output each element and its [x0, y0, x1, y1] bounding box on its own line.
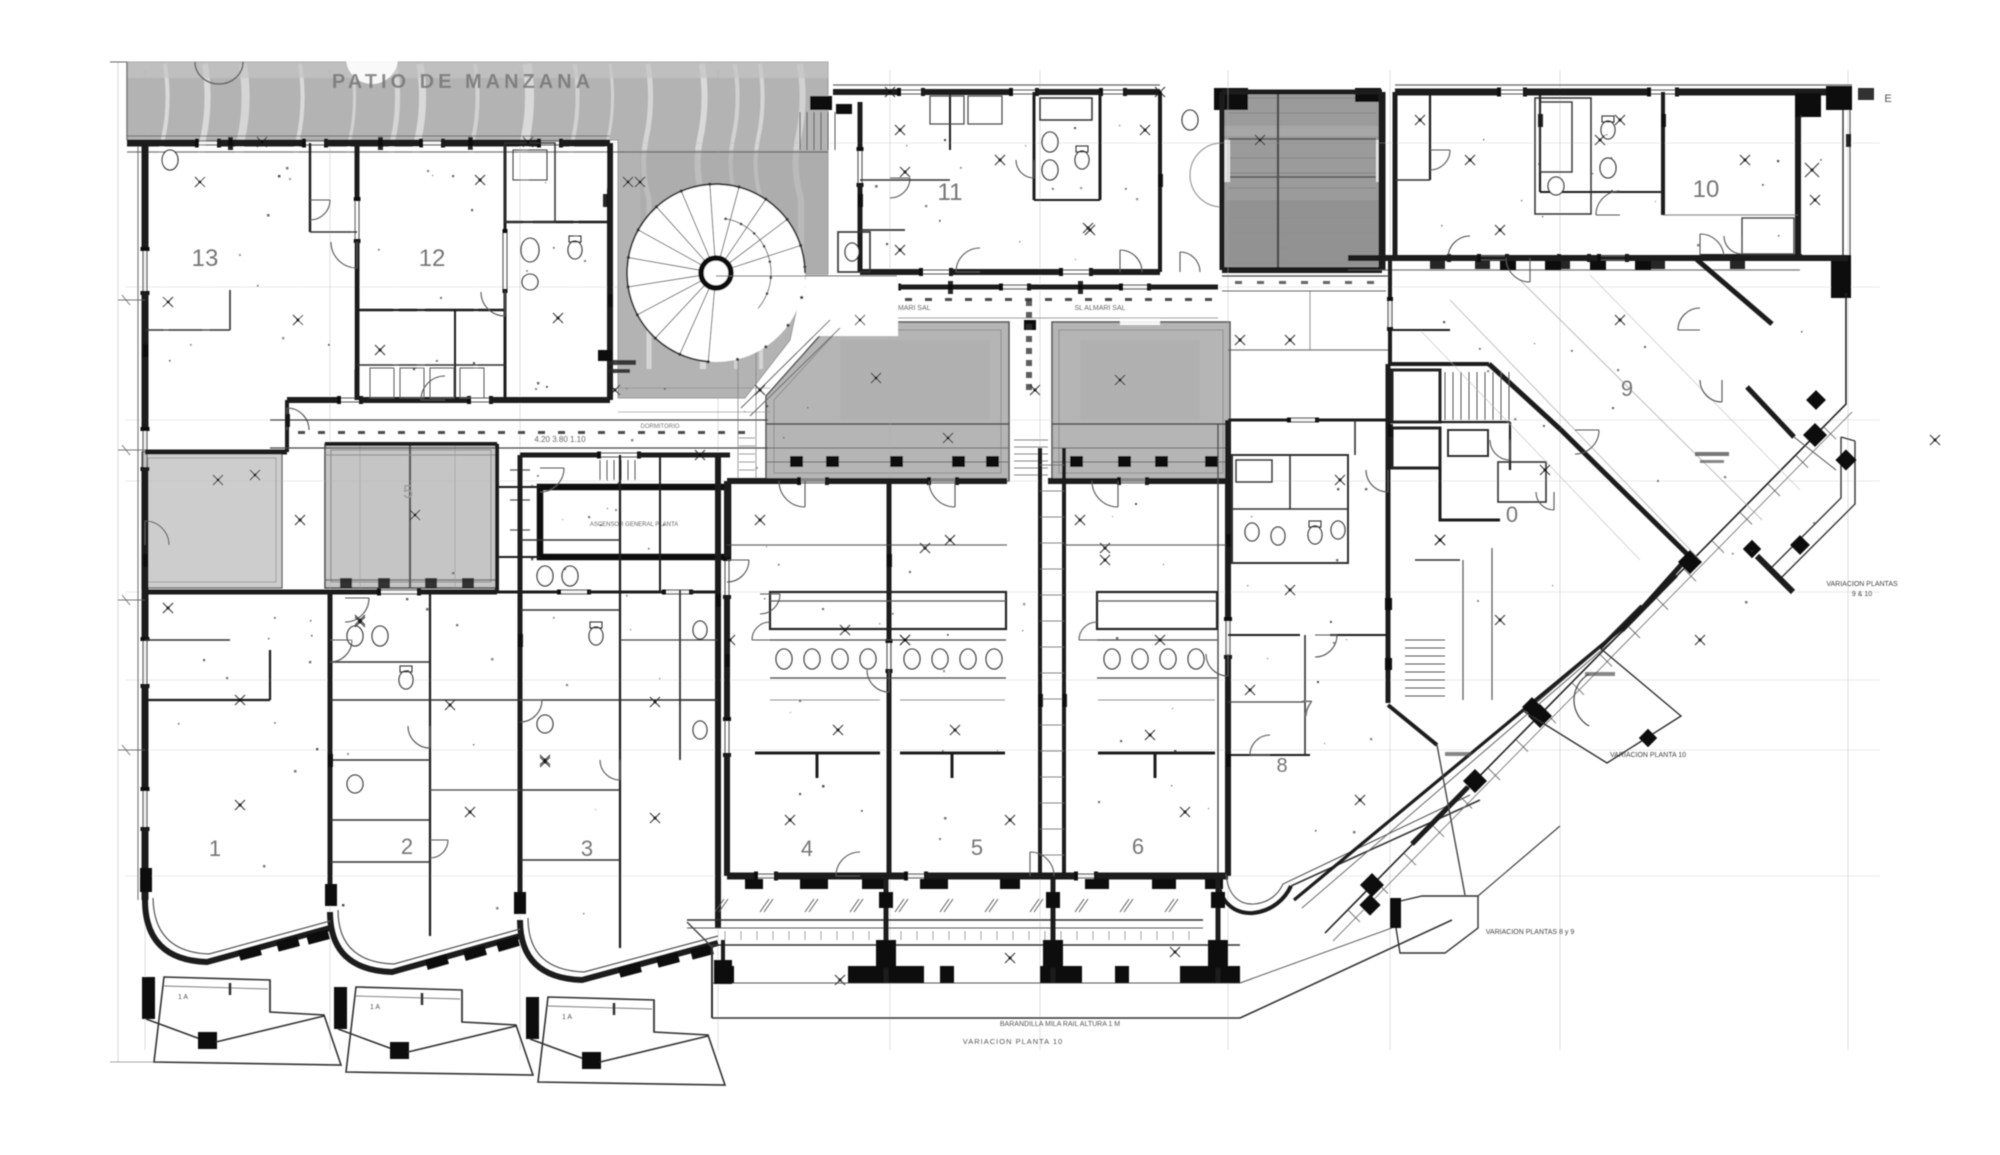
svg-text:ASCENSOR GENERAL PLANTA: ASCENSOR GENERAL PLANTA: [590, 522, 678, 528]
svg-text:E: E: [1884, 93, 1891, 105]
svg-text:1 A: 1 A: [370, 1004, 380, 1011]
svg-text:5: 5: [403, 482, 413, 502]
svg-text:VARIACION PLANTAS: VARIACION PLANTAS: [1826, 581, 1898, 588]
svg-text:8: 8: [1276, 755, 1287, 777]
svg-text:VARIACION PLANTA 10: VARIACION PLANTA 10: [1610, 752, 1686, 759]
svg-text:2: 2: [401, 834, 413, 859]
svg-text:10: 10: [1693, 176, 1720, 203]
svg-text:0: 0: [1506, 502, 1518, 527]
svg-text:VARIACION PLANTAS 8 y 9: VARIACION PLANTAS 8 y 9: [1486, 929, 1575, 936]
svg-text:PATIO DE MANZANA: PATIO DE MANZANA: [332, 71, 594, 93]
svg-text:DORMITORIO: DORMITORIO: [641, 424, 680, 430]
svg-text:SL ALMARI SAL: SL ALMARI SAL: [1074, 305, 1125, 312]
svg-text:5: 5: [971, 835, 983, 860]
svg-text:7: 7: [1301, 696, 1313, 721]
svg-text:9 & 10: 9 & 10: [1852, 591, 1872, 598]
svg-text:3: 3: [581, 836, 593, 861]
svg-text:4: 4: [801, 836, 813, 861]
svg-text:12: 12: [419, 245, 446, 272]
svg-text:11: 11: [938, 179, 963, 206]
svg-text:6: 6: [1132, 834, 1144, 859]
svg-text:1 A: 1 A: [178, 994, 188, 1001]
svg-text:4.20 3.80 1.10: 4.20 3.80 1.10: [534, 435, 586, 444]
svg-text:1 A: 1 A: [562, 1014, 572, 1021]
svg-text:9: 9: [1621, 376, 1633, 401]
svg-text:VARIACION PLANTA 10: VARIACION PLANTA 10: [963, 1037, 1063, 1046]
svg-text:BARANDILLA MILA RAIL ALTURA 1: BARANDILLA MILA RAIL ALTURA 1 M: [1000, 1021, 1120, 1028]
svg-text:13: 13: [192, 245, 219, 272]
svg-text:1: 1: [209, 836, 221, 861]
